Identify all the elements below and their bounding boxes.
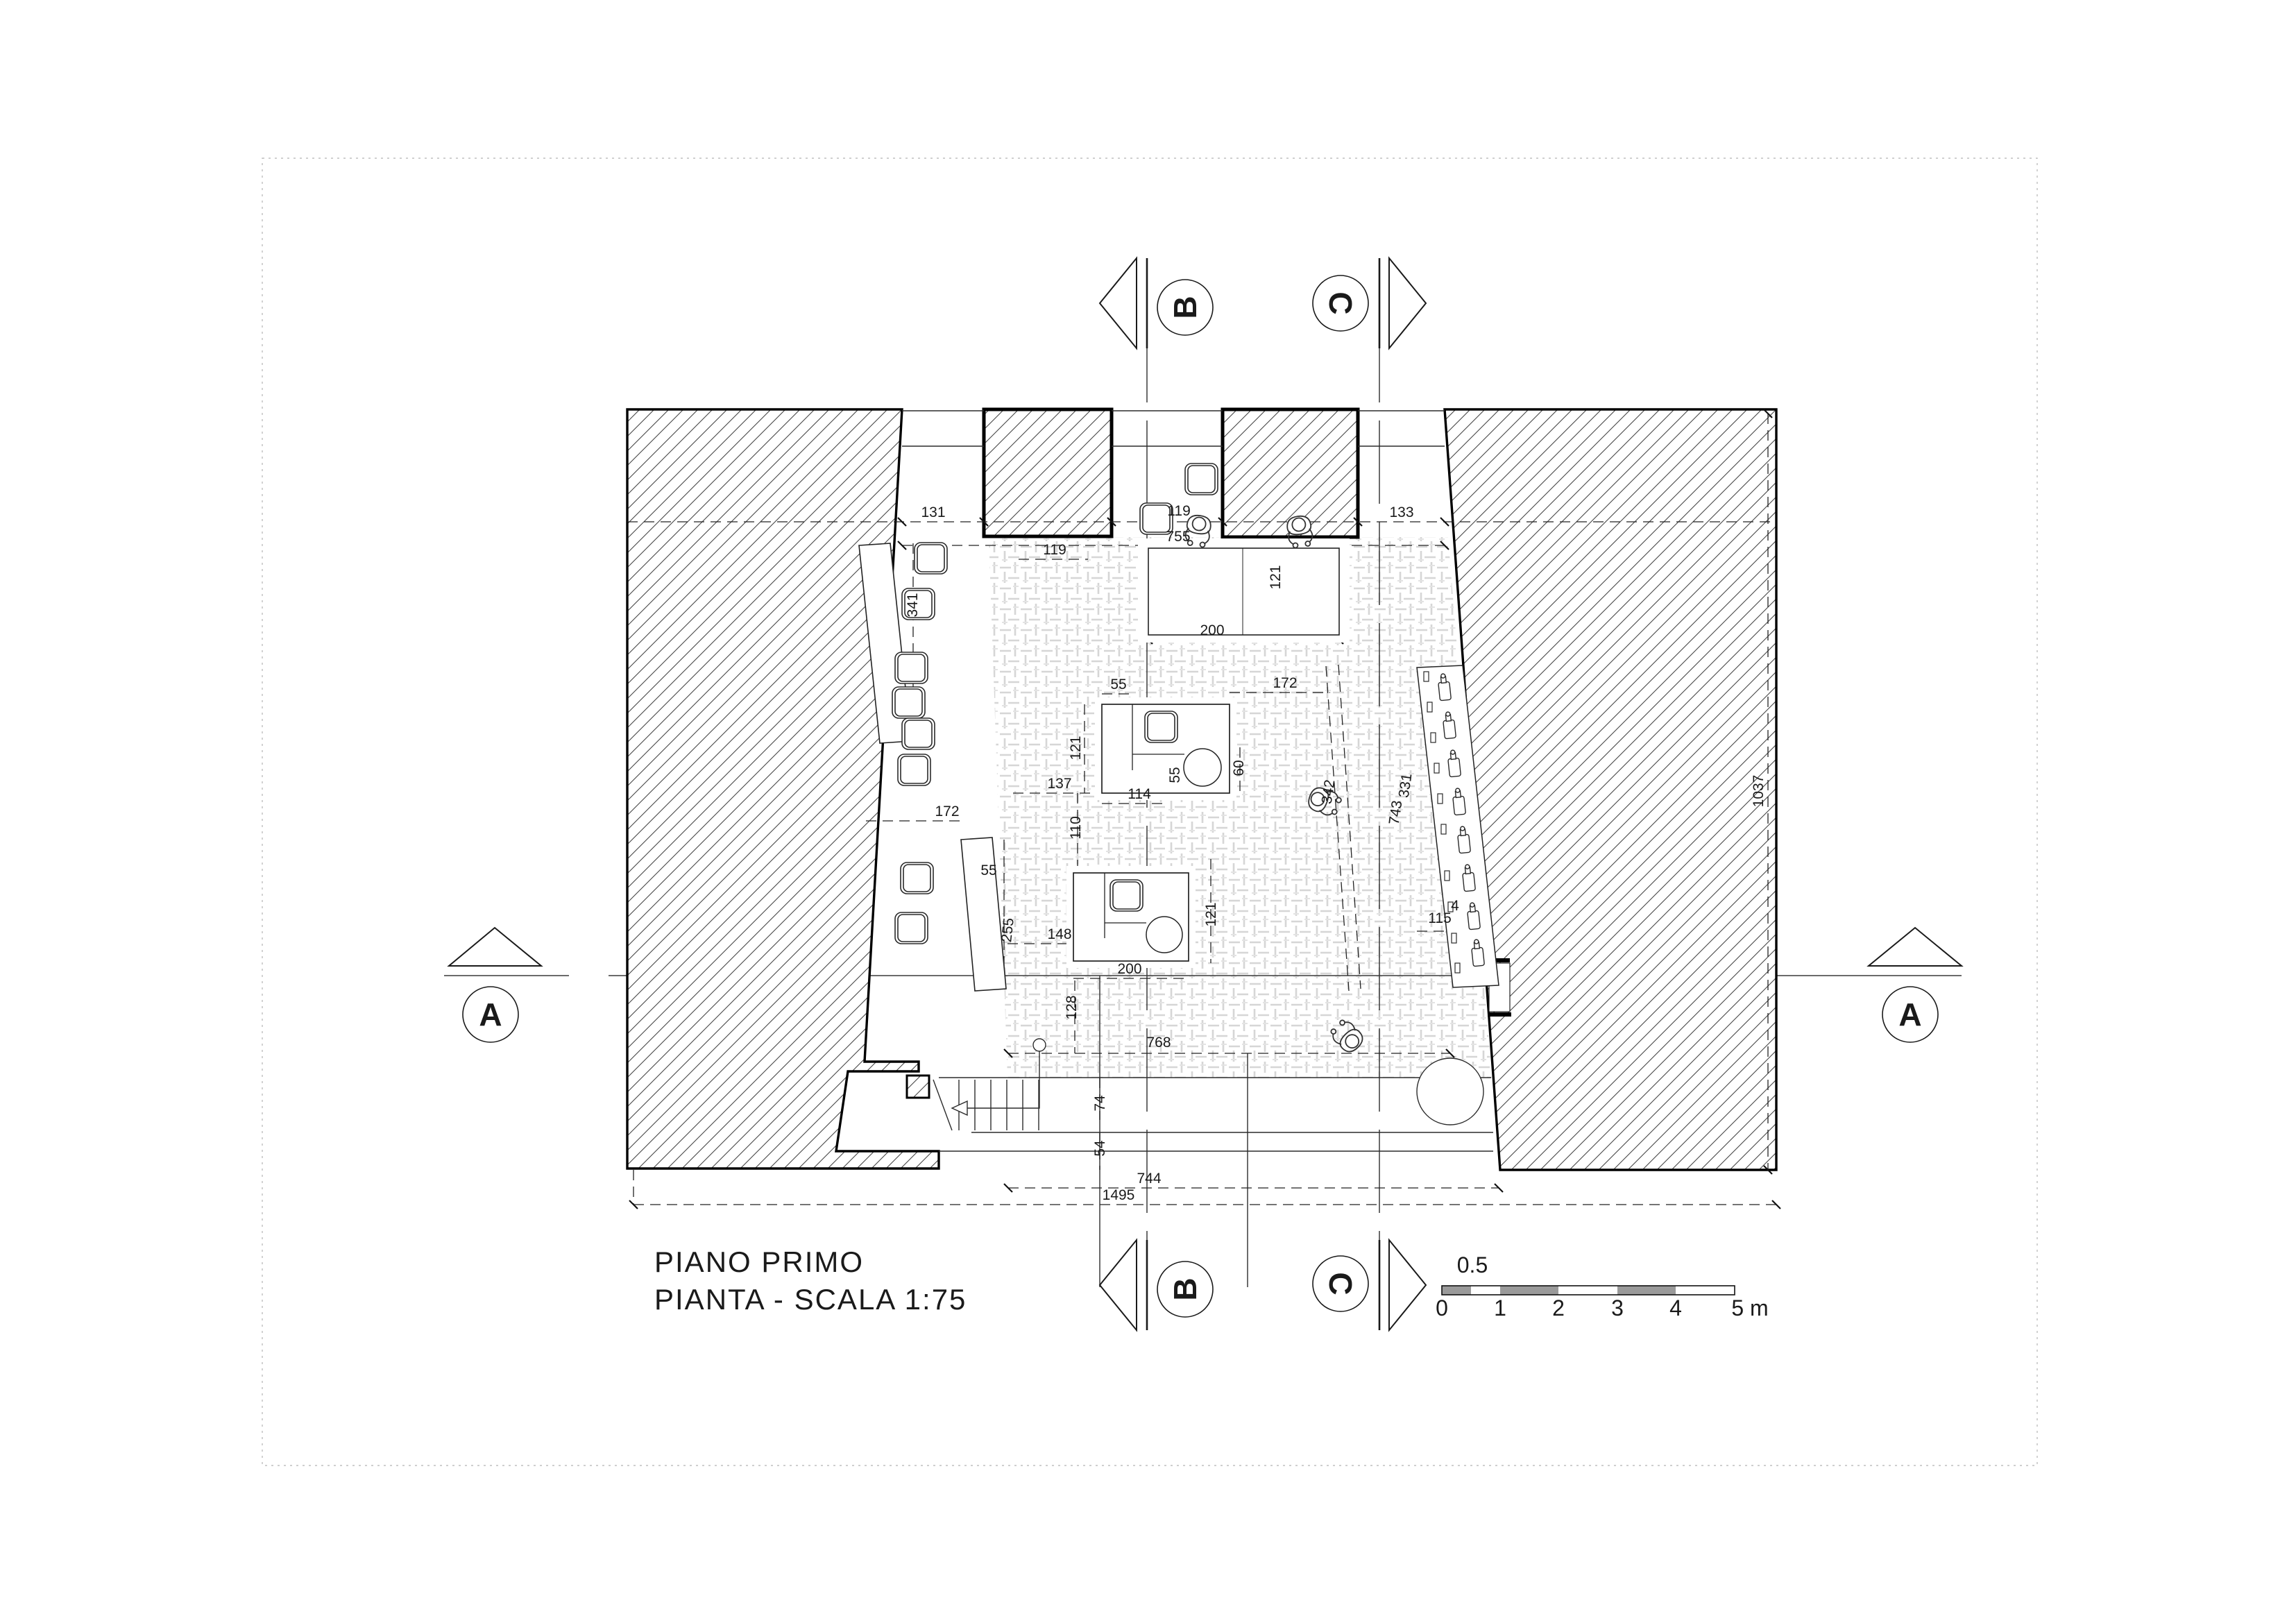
dimension-label: 55 — [980, 863, 996, 878]
chair — [915, 543, 947, 574]
dimension-label: 54 — [1092, 1140, 1108, 1157]
workstation-2 — [1066, 866, 1196, 968]
scale-bar: 0.5 012345 m — [1436, 1252, 1769, 1320]
dimension-label: 119 — [1167, 503, 1190, 519]
dimension-label: 121 — [1268, 565, 1284, 589]
wall-left — [627, 409, 939, 1169]
chair — [895, 652, 928, 683]
section-c-top-triangle — [1389, 258, 1426, 348]
dimension-label: 331 — [1396, 772, 1415, 799]
scale-tick-label: 4 — [1669, 1295, 1682, 1320]
scale-bar-outline — [1442, 1286, 1735, 1295]
dimension-label: 172 — [935, 804, 959, 819]
long-desk-lower — [961, 838, 1006, 991]
meeting-table — [1148, 548, 1339, 635]
scale-tick-label: 5 m — [1731, 1295, 1768, 1320]
scale-bar-segment — [1617, 1286, 1676, 1295]
chair — [892, 687, 925, 718]
scale-half-label: 0.5 — [1457, 1252, 1488, 1277]
section-marker-letter: A — [1898, 996, 1921, 1033]
wall-right — [1445, 409, 1776, 1170]
dimension-label: 60 — [1231, 760, 1247, 776]
dimension-label: 131 — [921, 504, 945, 520]
title-line-2: PIANTA - SCALA 1:75 — [654, 1283, 967, 1316]
section-c-bottom-triangle — [1389, 1240, 1426, 1330]
dimension-label: 55 — [1110, 677, 1126, 692]
scale-tick-label: 0 — [1436, 1295, 1448, 1320]
chair — [902, 718, 935, 749]
dimension-label: 137 — [1047, 776, 1071, 792]
dimension-label: 128 — [1064, 995, 1080, 1019]
stair-cut-line — [933, 1080, 952, 1130]
dimension-label: 255 — [998, 917, 1017, 943]
section-marker-letter: C — [1323, 1272, 1359, 1295]
section-marker-letter: B — [1167, 296, 1203, 318]
dimension-label: 114 — [1128, 786, 1151, 802]
title-line-1: PIANO PRIMO — [654, 1246, 864, 1278]
chair — [901, 863, 933, 894]
floor-plan-drawing: BCBCAA 131119133755119121200341551721216… — [0, 0, 2296, 1623]
workstation-1 — [1095, 697, 1236, 800]
drawing-sheet: BCBCAA 131119133755119121200341551721216… — [0, 0, 2296, 1623]
wall-pillar-1 — [984, 409, 1112, 536]
section-b-bottom-triangle — [1100, 1240, 1137, 1330]
dimension-label: 341 — [905, 593, 921, 617]
chair — [898, 754, 930, 785]
section-a-left-triangle — [449, 928, 541, 966]
scale-tick-label: 2 — [1552, 1295, 1565, 1320]
dimension-label: 121 — [1203, 902, 1219, 926]
dimension-label: 342 — [1319, 779, 1338, 805]
scale-bar-segment — [1442, 1286, 1471, 1295]
stair-treads — [959, 1080, 1039, 1130]
wall-pillar-2 — [1223, 409, 1358, 537]
dimension-label: 115 — [1428, 910, 1451, 926]
dimension-label: 1495 — [1103, 1187, 1135, 1203]
round-table — [1417, 1058, 1483, 1125]
dimension-label: 744 — [1137, 1171, 1161, 1187]
section-a-right-triangle — [1869, 928, 1962, 966]
scale-tick-label: 3 — [1611, 1295, 1624, 1320]
dimension-label: 133 — [1389, 504, 1413, 520]
dimension-label: 4 — [1451, 898, 1459, 914]
section-marker-letter: C — [1323, 291, 1359, 314]
dimension-label: 768 — [1146, 1035, 1171, 1051]
dimension-label: 119 — [1043, 542, 1066, 558]
dimension-label: 172 — [1273, 675, 1297, 691]
dimension-label: 110 — [1068, 816, 1084, 839]
dimension-label: 55 — [1167, 767, 1183, 783]
chair — [895, 912, 928, 944]
stair-start-circle — [1033, 1039, 1046, 1051]
title-block: PIANO PRIMO PIANTA - SCALA 1:75 — [654, 1246, 967, 1316]
dimension-label: 148 — [1047, 926, 1071, 942]
section-marker-letter: A — [479, 996, 502, 1033]
scale-tick-labels: 012345 m — [1436, 1295, 1769, 1320]
scale-bar-segment — [1500, 1286, 1558, 1295]
scale-tick-label: 1 — [1494, 1295, 1506, 1320]
dimension-label: 1037 — [1751, 775, 1767, 808]
stair-arrow — [952, 1101, 967, 1115]
dimension-label: 200 — [1117, 961, 1141, 977]
dimension-label: 200 — [1200, 622, 1224, 638]
dimension-label: 74 — [1092, 1095, 1108, 1112]
door-jamb-block — [907, 1076, 929, 1098]
section-marker-letter: B — [1167, 1277, 1203, 1300]
dimension-label: 755 — [1166, 529, 1190, 545]
dimension-label: 743 — [1386, 799, 1406, 826]
chair — [1185, 464, 1218, 495]
section-b-top-triangle — [1100, 258, 1137, 348]
dimension-label: 121 — [1068, 736, 1084, 760]
